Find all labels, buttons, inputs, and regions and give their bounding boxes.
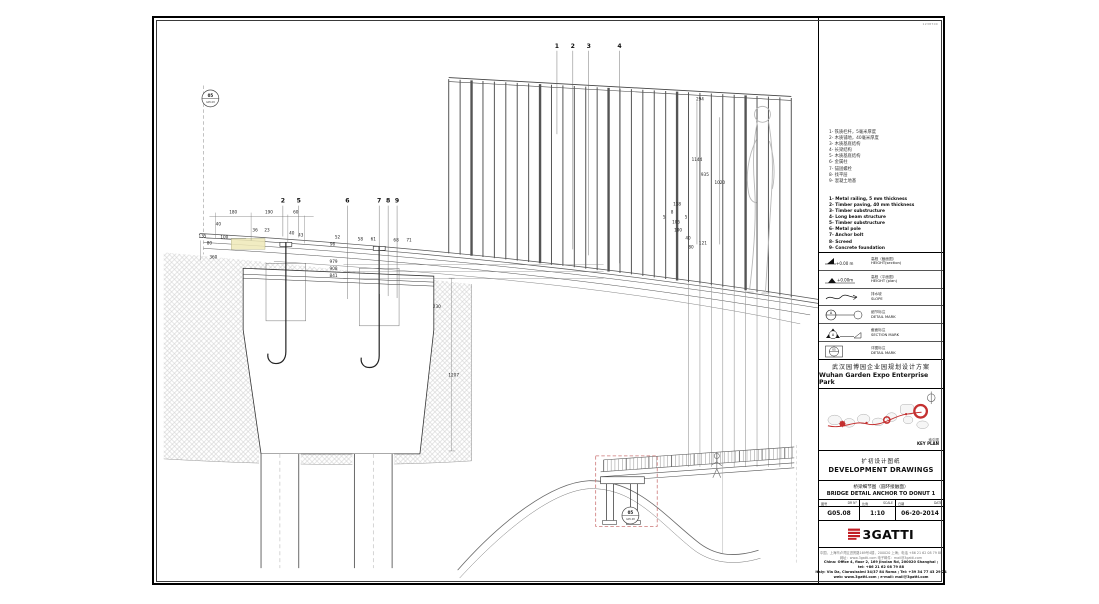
dimension-label: 80 [207, 240, 213, 245]
dimension-label: 5 [685, 215, 688, 220]
detail-marker-number: 05 [208, 93, 214, 98]
callout-number: 6 [345, 198, 349, 205]
callout-number: 8 [386, 198, 390, 205]
callout-number: 3 [587, 43, 591, 50]
dimension-label: 58 [358, 236, 364, 241]
callout-number: 2 [571, 43, 575, 50]
dimension-label: 1144 [692, 157, 703, 162]
dimension-label: 40 [289, 230, 295, 235]
list-line: 9- 混凝土地基 [829, 179, 943, 185]
callout-number: 5 [297, 198, 301, 205]
drawing-title-cn: 桥梁细节图（圆环接触面） [853, 484, 908, 490]
dimension-label: 61 [371, 236, 377, 241]
keyplan-label-en: KEY PLAN [917, 442, 939, 447]
svg-text:05: 05 [832, 347, 836, 351]
detail-marker-sheet: G05.08 [206, 101, 215, 104]
section-mark-symbol-icon: A [823, 326, 871, 340]
height-section-symbol-icon: +0.00 m [823, 254, 871, 268]
scale-value: 1:10 [860, 507, 895, 520]
drawing-title-en: BRIDGE DETAIL ANCHOR TO DONUT 1 [827, 491, 936, 497]
phase-cn: 扩初设计图纸 [861, 457, 900, 465]
phase-section: 扩初设计图纸 DEVELOPMENT DRAWINGS [819, 450, 943, 480]
drawing-title-section: 桥梁细节图（圆环接触面） BRIDGE DETAIL ANCHOR TO DON… [819, 480, 943, 499]
dimension-label: 908 [330, 266, 338, 271]
railing-bars [449, 79, 792, 467]
dimension-label: 36 [252, 227, 258, 232]
field-scale: 比例SCALE 1:10 [860, 500, 896, 520]
contact-lines-en: China: Office 4, floor 2, 169 Jinxian Rd… [815, 560, 946, 580]
dimension-label: 294 [696, 96, 704, 101]
detail-mark2-symbol-icon: 05 [823, 344, 871, 358]
project-title-section: 武汉园博园企业园规划设计方案 Wuhan Garden Expo Enterpr… [819, 359, 943, 388]
svg-text:A: A [830, 311, 833, 315]
drawing-sheet: 1801906040135801003603623404352965861687… [152, 16, 945, 585]
callout-number: 9 [395, 198, 399, 205]
dimension-label: 979 [330, 259, 338, 264]
height-plan-symbol-icon: +0.00m [823, 272, 871, 286]
notes-section: 1- 铁质栏杆，5毫米厚度2- 木质铺地，40毫米厚度3- 木质基底结构4- 长… [819, 18, 943, 252]
dimension-label: 68 [393, 237, 399, 242]
dimension-label: 360 [209, 254, 217, 259]
dimension-label: 935 [701, 172, 709, 177]
dimension-label: 135 [198, 233, 206, 238]
project-title-cn: 武汉园博园企业园规划设计方案 [832, 362, 930, 371]
dimension-label: 190 [265, 210, 273, 215]
legend-row-slope: 排水坡SLOPE [819, 289, 943, 307]
project-title-en: Wuhan Garden Expo Enterprise Park [819, 372, 943, 386]
list-line: 中国，上海市卢湾区进贤路169号4楼，200020 上海；电话 +86 21 6… [820, 551, 942, 556]
callout-number: 7 [377, 198, 381, 205]
field-date: 日期DATE 06-20-2014 [896, 500, 944, 520]
legend-section: +0.00 m 高程（截面图）HEIGHT(section) +0.00m 高程… [819, 252, 943, 359]
svg-text:+0.00m: +0.00m [837, 278, 853, 283]
concrete-foundation [243, 263, 434, 454]
list-line: web: www.3gatti.com ; e-mail: mail@3gatt… [815, 575, 946, 580]
contact-lines-cn: 中国，上海市卢湾区进贤路169号4楼，200020 上海；电话 +86 21 6… [820, 551, 942, 560]
dimension-label: 100 [674, 227, 682, 232]
dimension-label: 230 [433, 304, 441, 309]
notes-list-en: 1- Metal railing, 5 mm thickness2- Timbe… [829, 197, 943, 252]
dimension-label: 71 [406, 237, 412, 242]
drawing-number-value: G05.08 [819, 507, 859, 520]
legend-row-section-mark: A 截面标注SECTION MARK [819, 324, 943, 342]
list-line: 9- Concrete foundation [829, 246, 943, 252]
dimension-label: 100 [220, 234, 228, 239]
fields-section: 图号DR N° G05.08 比例SCALE 1:10 日期DATE 06-20… [819, 499, 943, 520]
legend-row-detail-mark-2: 05 详图标注DETAIL MARK [819, 342, 943, 359]
dimension-label: 40 [216, 222, 222, 227]
person-figure [746, 106, 774, 293]
dimension-label: 52 [335, 234, 341, 239]
dimension-label: 40 [685, 235, 691, 240]
3gatti-logo-text: 3GATTI [863, 527, 914, 542]
dimension-label: 5 [663, 215, 666, 220]
svg-text:+0.00 m: +0.00 m [836, 261, 854, 266]
dimension-label: 118 [673, 202, 681, 207]
logo-section: 3GATTI [819, 520, 943, 547]
dimension-label: 180 [229, 210, 237, 215]
legend-row-height-section: +0.00 m 高程（截面图）HEIGHT(section) [819, 253, 943, 271]
slope-symbol-icon [823, 290, 871, 304]
callout-number: 4 [617, 43, 621, 50]
phase-en: DEVELOPMENT DRAWINGS [828, 466, 933, 474]
dimension-label: 23 [264, 227, 270, 232]
3gatti-logo-icon [848, 528, 860, 540]
dimension-label: 121 [699, 240, 707, 245]
dimension-label: 105 [672, 220, 680, 225]
notes-list-cn: 1- 铁质栏杆，5毫米厚度2- 木质铺地，40毫米厚度3- 木质基底结构4- 长… [829, 130, 943, 185]
highlight-strip [231, 238, 265, 249]
callout-number: 1 [555, 43, 559, 50]
legend-row-detail-mark: A 细节标注DETAIL MARK [819, 306, 943, 324]
dimension-label: 1020 [714, 180, 725, 185]
date-value: 06-20-2014 [896, 507, 944, 520]
dimension-label: 8 [671, 210, 674, 215]
callout-number: 2 [281, 198, 285, 205]
detail-mark-symbol-icon: A [823, 308, 871, 322]
north-arrow-icon [927, 391, 935, 404]
dimension-label: 1207 [448, 372, 459, 377]
dimension-label: 60 [293, 210, 299, 215]
dimension-label: 96 [330, 241, 336, 246]
legend-row-height-plan: +0.00m 高程（平面图）HEIGHT (plan) [819, 271, 943, 289]
foundation-piles [259, 454, 394, 568]
field-drawing-number: 图号DR N° G05.08 [819, 500, 860, 520]
contact-section: 中国，上海市卢湾区进贤路169号4楼，200020 上海；电话 +86 21 6… [819, 547, 943, 583]
detail-marker-number: 05 [628, 510, 634, 515]
detail-marker-sheet: G05.08 [626, 518, 635, 521]
dimension-label: 80 [688, 244, 694, 249]
title-block: 1238700 1- 铁质栏杆，5毫米厚度2- 木质铺地，40毫米厚度3- 木质… [818, 18, 943, 583]
dimension-label: 841 [330, 273, 338, 278]
keyplan-section: 索引图 KEY PLAN [819, 388, 943, 450]
